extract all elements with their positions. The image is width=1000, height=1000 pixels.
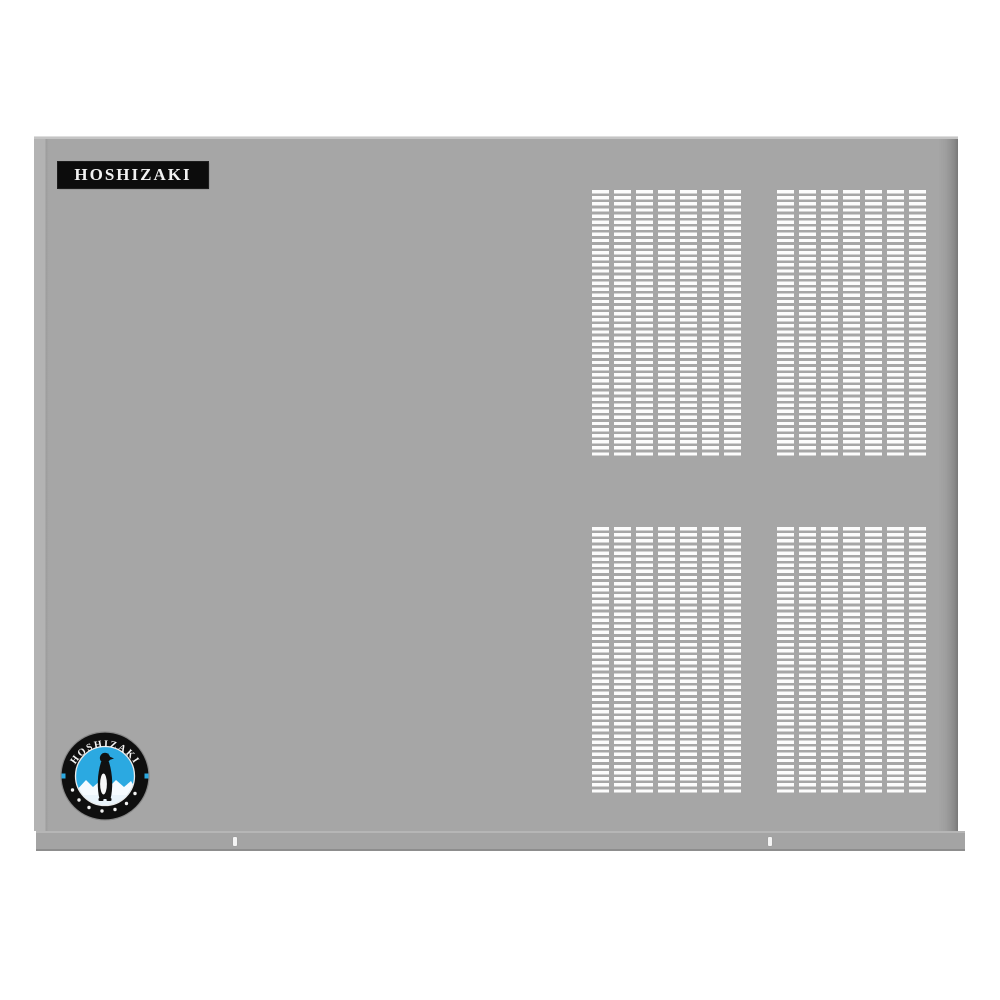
rivet-mark (233, 837, 237, 846)
rivet-mark (768, 837, 772, 846)
vent-grille-bottom-left (592, 527, 741, 795)
penguin-logo-badge: HOSHIZAKI (60, 731, 150, 821)
brand-nameplate: HOSHIZAKI (58, 162, 208, 188)
product-image-ice-machine-front-panel: HOSHIZAKI (0, 0, 1000, 1000)
vent-grille-top-left (592, 190, 741, 458)
vent-grille-top-right (777, 190, 926, 458)
vent-grille-bottom-right (777, 527, 926, 795)
kick-strip (36, 831, 965, 851)
